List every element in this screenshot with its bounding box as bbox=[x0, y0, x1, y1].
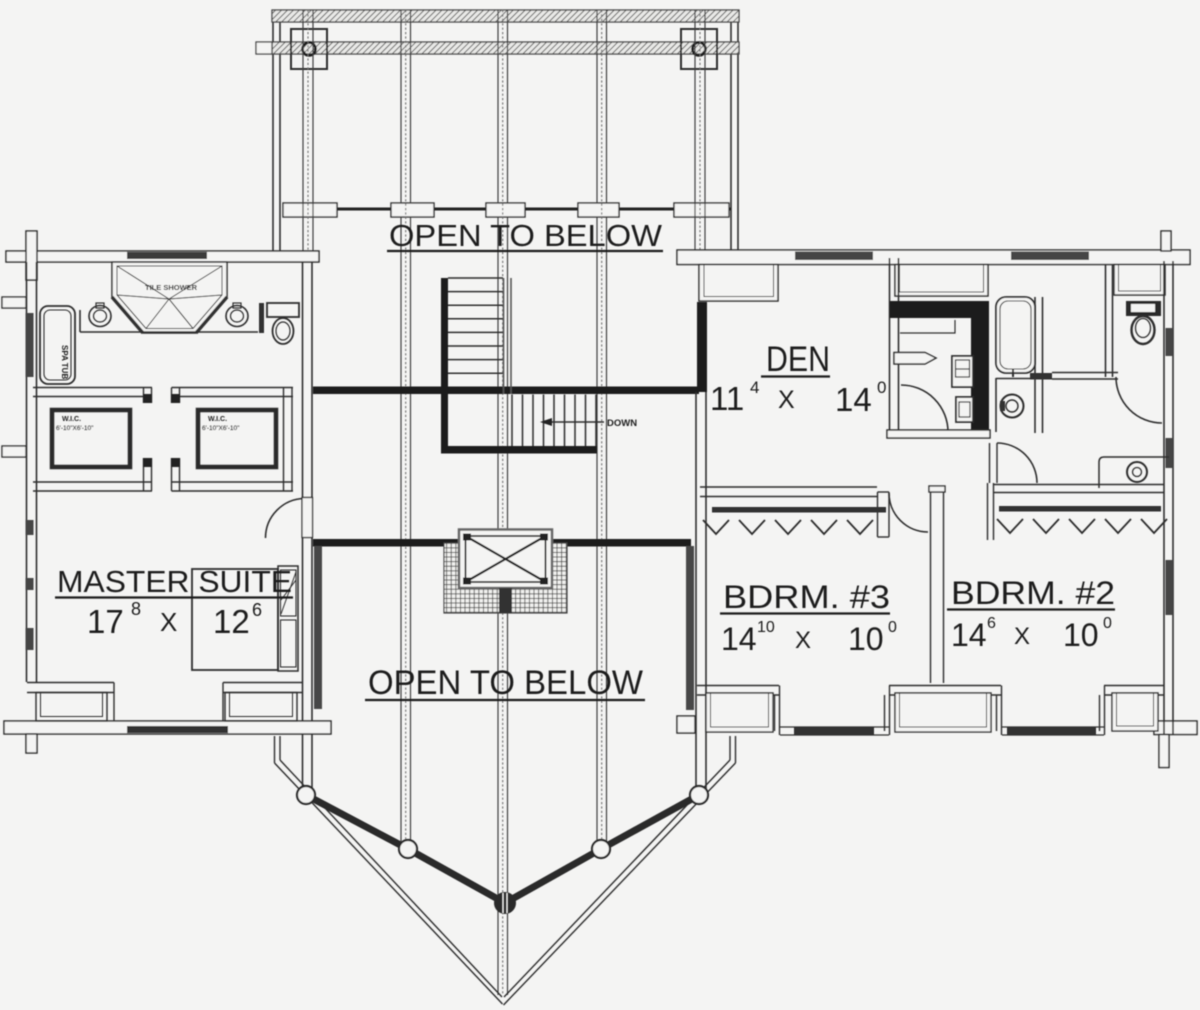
svg-text:DEN: DEN bbox=[766, 340, 830, 379]
svg-text:10: 10 bbox=[1063, 617, 1099, 653]
svg-text:X: X bbox=[778, 386, 795, 414]
svg-text:4: 4 bbox=[750, 378, 759, 397]
svg-text:OPEN TO BELOW: OPEN TO BELOW bbox=[389, 218, 663, 253]
svg-text:BDRM. #2: BDRM. #2 bbox=[951, 575, 1115, 611]
svg-text:14: 14 bbox=[835, 381, 872, 418]
svg-text:W.I.C.: W.I.C. bbox=[208, 416, 227, 423]
svg-text:MASTER SUITE: MASTER SUITE bbox=[57, 564, 292, 599]
svg-text:BDRM. #3: BDRM. #3 bbox=[723, 579, 890, 615]
svg-text:X: X bbox=[160, 607, 177, 637]
svg-text:X: X bbox=[795, 627, 811, 654]
svg-text:6'-10"X6'-10": 6'-10"X6'-10" bbox=[202, 425, 240, 432]
svg-text:11: 11 bbox=[710, 380, 744, 417]
svg-text:10: 10 bbox=[848, 621, 884, 657]
svg-text:8: 8 bbox=[131, 599, 141, 619]
svg-text:OPEN TO BELOW: OPEN TO BELOW bbox=[368, 664, 643, 702]
svg-text:12: 12 bbox=[213, 603, 250, 640]
svg-text:TILE SHOWER: TILE SHOWER bbox=[145, 283, 198, 292]
svg-text:DOWN: DOWN bbox=[607, 418, 637, 429]
svg-text:0: 0 bbox=[877, 378, 886, 397]
svg-text:6: 6 bbox=[987, 615, 996, 632]
svg-text:W.I.C.: W.I.C. bbox=[62, 416, 81, 423]
svg-text:0: 0 bbox=[888, 619, 897, 636]
svg-text:17: 17 bbox=[87, 603, 124, 640]
svg-text:6: 6 bbox=[252, 600, 262, 620]
svg-text:10: 10 bbox=[757, 619, 775, 636]
svg-text:6'-10"X6'-10": 6'-10"X6'-10" bbox=[56, 425, 94, 432]
svg-text:0: 0 bbox=[1103, 615, 1112, 632]
svg-text:SPA TUB: SPA TUB bbox=[60, 345, 69, 379]
svg-text:14: 14 bbox=[951, 617, 987, 653]
svg-text:14: 14 bbox=[721, 621, 757, 657]
svg-text:X: X bbox=[1014, 623, 1030, 650]
